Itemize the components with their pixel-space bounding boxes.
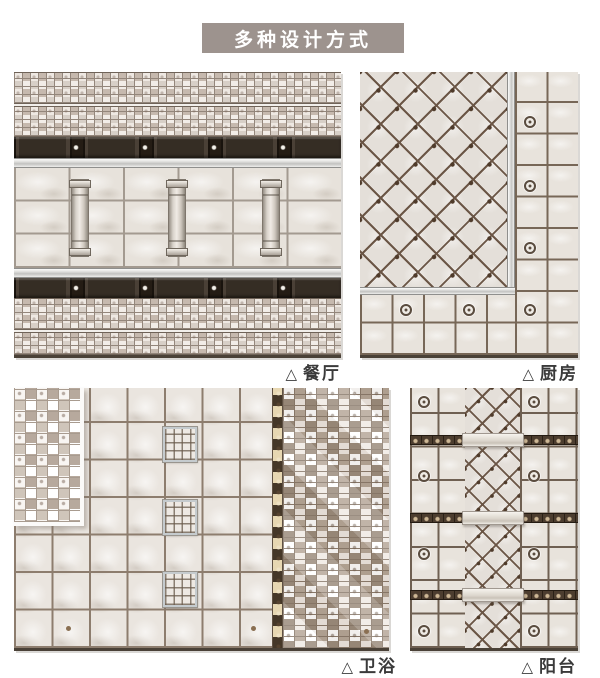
- triangle-icon: △: [341, 659, 355, 676]
- accent-listello-vertical: [272, 388, 283, 648]
- drain-dot: [66, 626, 71, 631]
- marble-bar: [462, 433, 524, 447]
- caption-bathroom: △卫浴: [341, 652, 397, 677]
- inset-decor-tile: [163, 427, 197, 462]
- medallion-ring: [418, 548, 430, 560]
- medallion-ring: [528, 470, 540, 482]
- dark-listello-strip: [410, 590, 465, 600]
- medallion-ring: [418, 396, 430, 408]
- kitchen-label: 厨房: [540, 364, 578, 383]
- triangle-icon: △: [285, 366, 299, 383]
- silver-divider-vertical: [507, 72, 515, 295]
- kitchen-tile-preview: [360, 72, 578, 358]
- bathroom-label: 卫浴: [359, 657, 397, 676]
- dining-room-tile-preview: [14, 72, 341, 358]
- dark-listello-strip: [520, 435, 578, 445]
- drain-dot: [364, 629, 369, 634]
- dining-label: 餐厅: [303, 364, 341, 383]
- corner-mosaic-block: [14, 388, 84, 526]
- medallion-ring: [463, 304, 475, 316]
- medallion-ring: [528, 625, 540, 637]
- dark-listello-strip: [410, 435, 465, 445]
- caption-kitchen: △厨房: [522, 359, 578, 384]
- caption-balcony: △阳台: [521, 652, 577, 677]
- medallion-ring: [524, 242, 536, 254]
- medallion-ring: [524, 180, 536, 192]
- silver-trim-strip: [14, 268, 341, 278]
- medallion-ring: [418, 625, 430, 637]
- pilaster-column: [72, 180, 88, 256]
- drain-dot: [251, 626, 256, 631]
- inset-decor-tile: [163, 500, 197, 535]
- dark-listello-strip: [14, 278, 341, 298]
- triangle-icon: △: [521, 659, 535, 676]
- mosaic-band: [14, 298, 341, 330]
- triangle-icon: △: [522, 366, 536, 383]
- diamond-tile-field: [360, 72, 507, 287]
- pilaster-column: [263, 180, 279, 256]
- pilaster-column: [169, 180, 185, 256]
- balcony-tile-preview: [410, 388, 578, 651]
- page-title: 多种设计方式: [234, 25, 372, 52]
- title-banner: 多种设计方式: [202, 23, 404, 53]
- bathroom-tile-preview: [14, 388, 389, 651]
- caption-dining: △餐厅: [285, 359, 341, 384]
- mosaic-band: [14, 106, 341, 137]
- medallion-ring: [524, 116, 536, 128]
- medallion-ring: [400, 304, 412, 316]
- silver-trim-strip: [14, 158, 341, 168]
- mosaic-band: [14, 332, 341, 355]
- border-tile-rows: [360, 295, 515, 355]
- balcony-label: 阳台: [539, 657, 577, 676]
- large-tile-field: [14, 168, 341, 268]
- dark-listello-strip: [520, 590, 578, 600]
- medallion-ring: [418, 470, 430, 482]
- dark-listello-strip: [410, 513, 465, 523]
- mosaic-field: [283, 388, 389, 648]
- medallion-ring: [528, 548, 540, 560]
- silver-divider-horizontal: [360, 287, 515, 295]
- dark-listello-strip: [520, 513, 578, 523]
- medallion-ring: [524, 304, 536, 316]
- marble-bar: [462, 511, 524, 525]
- inset-decor-tile: [163, 572, 197, 607]
- dark-listello-strip: [14, 137, 341, 158]
- mosaic-band: [14, 72, 341, 104]
- tile-design-poster: 多种设计方式 △餐厅 △厨房: [0, 0, 600, 678]
- marble-bar: [462, 588, 524, 602]
- medallion-ring: [528, 396, 540, 408]
